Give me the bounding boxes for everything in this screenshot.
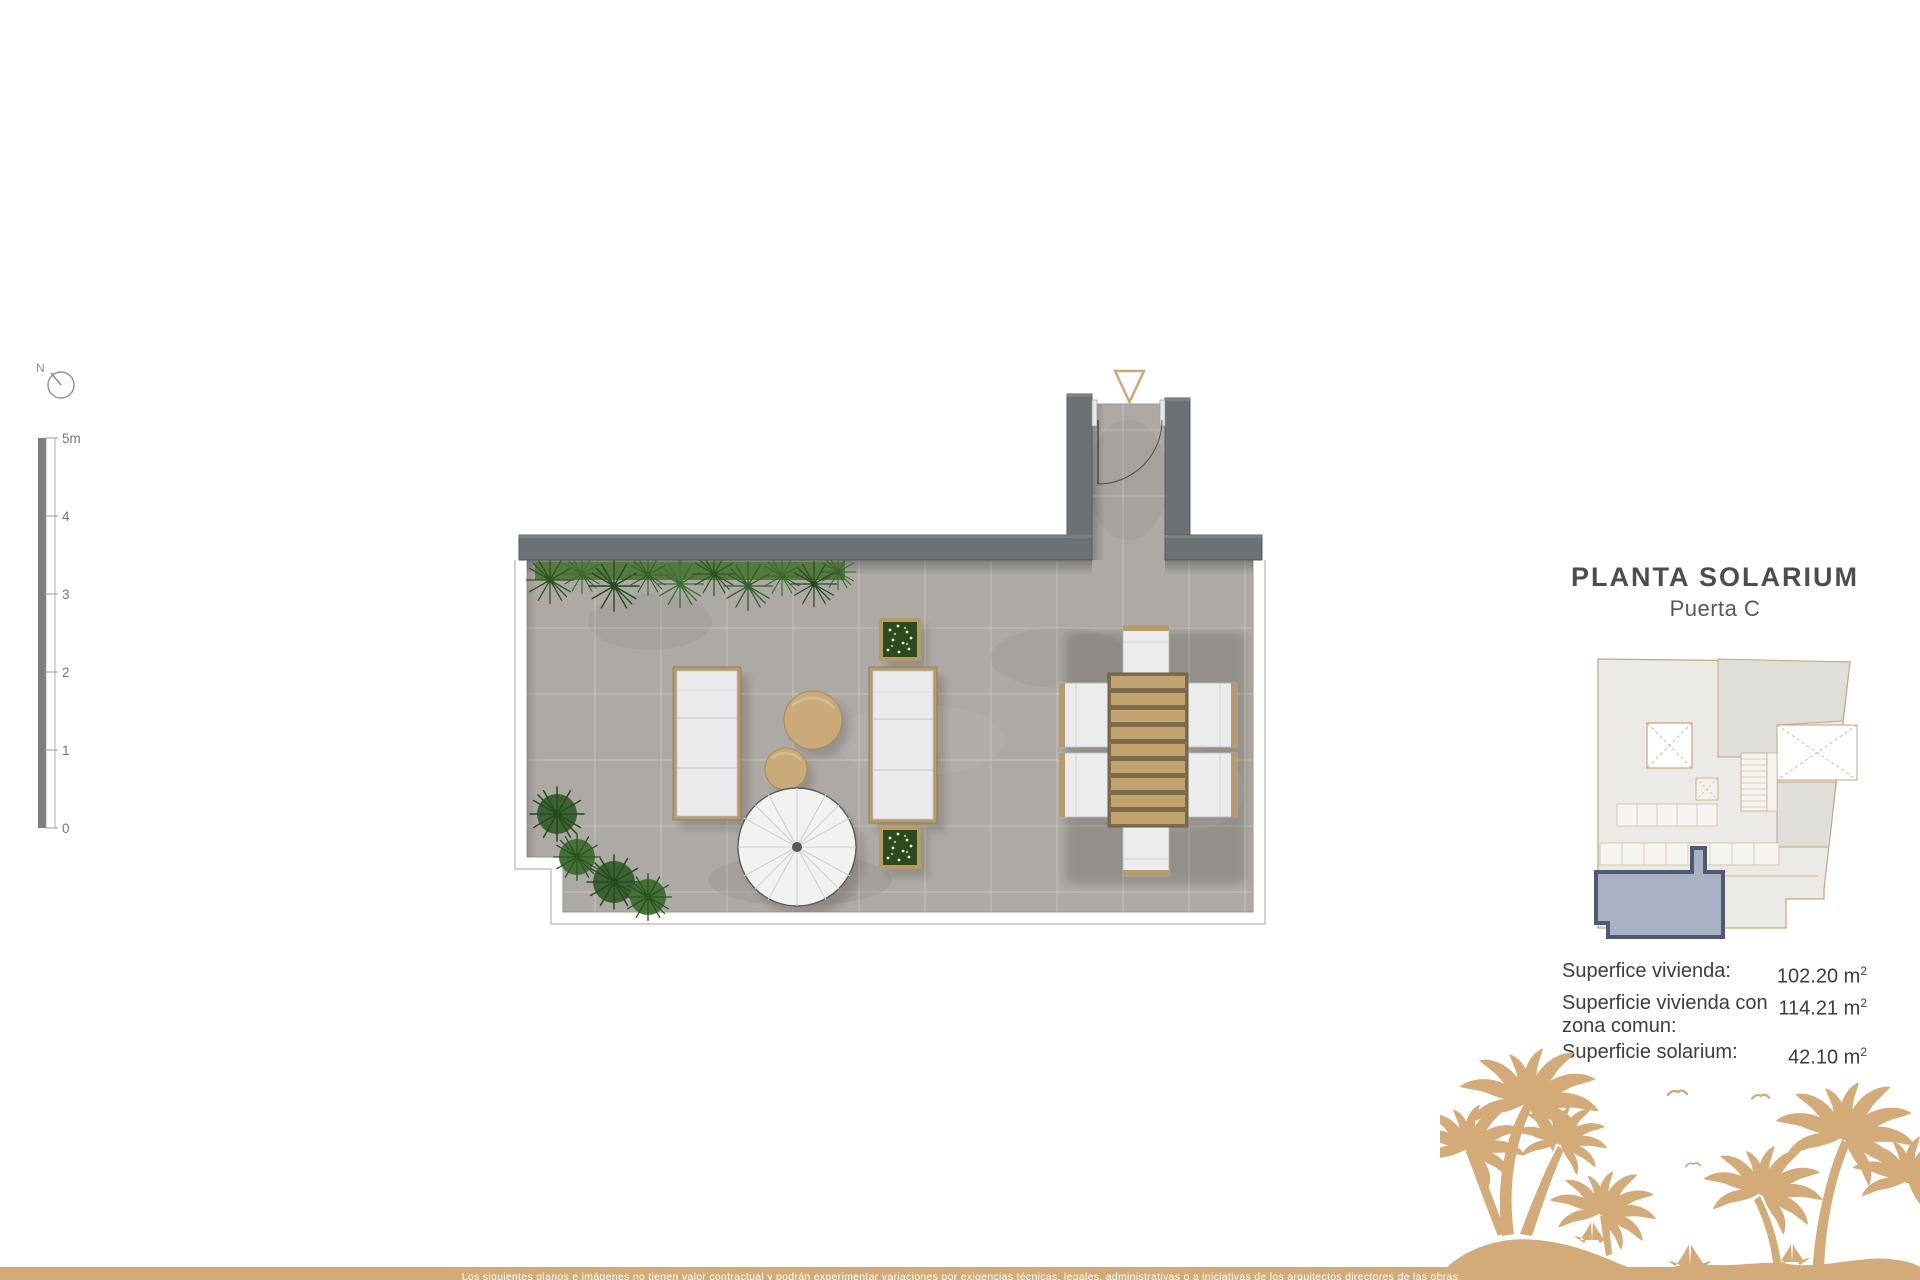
scale-label-0: 0	[62, 821, 70, 836]
scale-label-4: 4	[62, 509, 70, 524]
planter-top	[879, 618, 921, 661]
wall-entrance-left	[1067, 394, 1092, 536]
dining-chair-right-2	[1187, 753, 1237, 817]
dining-chair-bottom	[1123, 825, 1169, 876]
north-label: N	[36, 361, 45, 375]
value-number: 102.20	[1777, 966, 1838, 988]
plan-heading: PLANTA SOLARIUM Puerta C	[1535, 562, 1895, 622]
dining-chair-top	[1123, 625, 1169, 676]
page-title: PLANTA SOLARIUM	[1535, 562, 1895, 593]
side-table-small	[765, 748, 807, 790]
measurement-label: Superficie vivienda con zona comun:	[1562, 992, 1778, 1038]
palm-tree-small	[1549, 1168, 1657, 1256]
side-table-large	[784, 691, 842, 749]
small-shaft	[1696, 778, 1718, 800]
dining-table	[1108, 673, 1188, 827]
page: N 5m 4 3 2 1 0	[0, 0, 1920, 1280]
floor-plan	[500, 360, 1300, 960]
dining-chair-left-2	[1059, 753, 1109, 817]
parasol	[738, 788, 856, 906]
scale-label-1: 1	[62, 743, 70, 758]
scale-label-2: 2	[62, 665, 70, 680]
planter-bottom	[879, 826, 921, 869]
wall-entrance-right	[1165, 398, 1190, 536]
door-jamb-right	[1160, 400, 1165, 426]
dining-chair-left-1	[1059, 683, 1109, 747]
lift-shaft-left	[1647, 723, 1692, 768]
palm-tree-center	[1703, 1142, 1825, 1272]
measurement-value: 114.21 m2	[1778, 992, 1867, 1021]
lounger-left	[673, 667, 741, 820]
measurement-label: Superfice vivienda:	[1562, 960, 1777, 983]
unit-cells-row-1	[1617, 804, 1717, 826]
scale-bar-ruler	[46, 438, 55, 828]
value-unit: m	[1844, 966, 1861, 988]
palm-beach-graphic	[1440, 1040, 1920, 1280]
lounger-center	[869, 667, 937, 823]
dining-chair-right-1	[1187, 683, 1237, 747]
footer-bar: Los siguientes planos e imágenes no tien…	[0, 1267, 1920, 1280]
measurement-value: 102.20 m2	[1777, 960, 1867, 989]
lift-shaft-right	[1777, 725, 1857, 780]
scale-label-3: 3	[62, 587, 70, 602]
wall-top-right	[1165, 535, 1262, 560]
value-unit-exponent: 2	[1860, 996, 1867, 1010]
unit-cells-row-2	[1600, 843, 1779, 865]
bird-icon	[1686, 1163, 1700, 1166]
value-number: 114.21	[1778, 997, 1838, 1019]
north-compass: N	[24, 350, 94, 410]
roof-block-lower	[1777, 782, 1836, 847]
measurement-row: Superfice vivienda: 102.20 m2	[1562, 960, 1867, 989]
key-plan	[1580, 645, 1880, 955]
door-jamb-left	[1092, 400, 1097, 426]
scale-bar-body	[38, 438, 46, 828]
footer-disclaimer: Los siguientes planos e imágenes no tien…	[462, 1271, 1459, 1280]
scale-bar: 5m 4 3 2 1 0	[30, 428, 110, 842]
measurement-row: Superficie vivienda con zona comun: 114.…	[1562, 992, 1867, 1038]
bird-icon	[1668, 1091, 1687, 1095]
value-unit-exponent: 2	[1860, 964, 1867, 978]
scale-labels: 5m 4 3 2 1 0	[62, 431, 81, 836]
bird-icon	[1752, 1095, 1769, 1099]
value-unit: m	[1844, 997, 1861, 1019]
entrance-marker-triangle	[1115, 371, 1144, 402]
page-subtitle: Puerta C	[1535, 596, 1895, 622]
wall-top	[519, 535, 1092, 560]
scale-label-5m: 5m	[62, 431, 81, 446]
stairs	[1741, 753, 1777, 811]
